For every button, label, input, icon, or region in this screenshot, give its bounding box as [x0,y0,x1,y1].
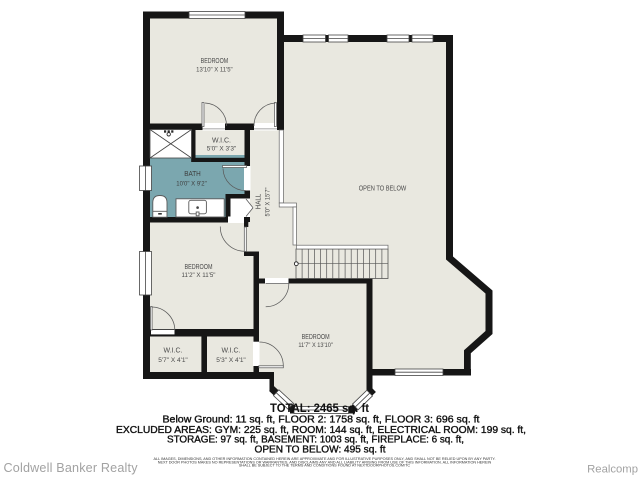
svg-text:BEDROOM: BEDROOM [185,264,213,271]
svg-text:TOTAL: 2465 sq. ft: TOTAL: 2465 sq. ft [270,401,369,415]
svg-text:5'0" X 3'3": 5'0" X 3'3" [207,146,237,153]
svg-text:10'0" X 9'2": 10'0" X 9'2" [176,181,207,188]
svg-text:W.I.C.: W.I.C. [222,348,241,355]
svg-text:HALL: HALL [256,194,263,210]
svg-text:Below Ground: 11 sq. ft, FLOOR: Below Ground: 11 sq. ft, FLOOR 2: 1758 s… [163,414,480,425]
svg-text:5'3" X 4'1": 5'3" X 4'1" [216,357,246,364]
svg-text:Coldwell Banker Realty: Coldwell Banker Realty [4,461,139,475]
svg-text:SHALL BE SUBJECT TO THE TERMS: SHALL BE SUBJECT TO THE TERMS AND CONDIT… [239,464,411,468]
svg-text:OPEN TO BELOW: 495 sq. ft: OPEN TO BELOW: 495 sq. ft [255,445,386,456]
svg-text:11'2" X 11'5": 11'2" X 11'5" [182,272,217,279]
svg-text:W.I.C.: W.I.C. [164,348,183,355]
svg-text:5'7" X 4'1": 5'7" X 4'1" [158,357,188,364]
svg-text:5'0" X 15'7": 5'0" X 15'7" [265,187,272,217]
svg-text:13'10" X 11'5": 13'10" X 11'5" [196,67,233,74]
svg-text:BEDROOM: BEDROOM [302,334,330,341]
svg-text:OPEN TO BELOW: OPEN TO BELOW [359,186,407,193]
svg-text:BEDROOM: BEDROOM [201,58,229,65]
svg-text:Realcomp: Realcomp [587,464,638,476]
svg-text:W.I.C.: W.I.C. [212,138,231,145]
svg-text:BATH: BATH [184,171,201,178]
svg-text:11'7" X 13'10": 11'7" X 13'10" [298,342,333,349]
